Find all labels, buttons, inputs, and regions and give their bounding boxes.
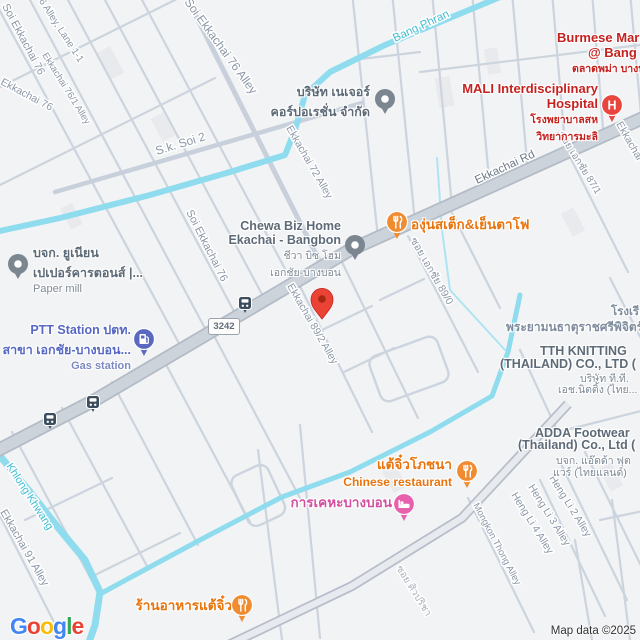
- poi-label-bangbon-housing[interactable]: การเคหะบางบอน: [291, 491, 392, 513]
- gray-poi-pin-nature-corp[interactable]: [374, 88, 396, 121]
- poi-label-ptt-station[interactable]: PTT Station ปตท. สาขา เอกชัย-บางบอน... G…: [3, 320, 131, 372]
- google-logo[interactable]: Google: [10, 613, 83, 640]
- bus-stop-icon-3[interactable]: [43, 412, 57, 436]
- destination-marker-pin[interactable]: [308, 283, 336, 326]
- gray-poi-pin-chewa[interactable]: [344, 234, 366, 267]
- poi-label-chewa-biz-home[interactable]: Chewa Biz Home Ekachai - Bangbon ชีวา บิ…: [228, 219, 341, 281]
- poi-label-adda-line2: (Thailand) Co., Ltd (: [518, 438, 635, 452]
- restaurant-icon-teochew[interactable]: [455, 460, 479, 497]
- poi-label-tth-line4: เอช.นิตติ้ง (ไทย...: [558, 381, 637, 398]
- restaurant-icon-teochew-2[interactable]: [230, 594, 254, 631]
- map-viewport[interactable]: Soi Ekkachai 76 Ekkachai 76 Alley, Lane …: [0, 0, 640, 640]
- hotel-icon[interactable]: [392, 493, 416, 530]
- gray-poi-pin-paper-mill[interactable]: [7, 253, 29, 286]
- poi-label-school-line2: พระยามนธาตุราชศรีพิจิตร์: [506, 318, 640, 337]
- svg-text:H: H: [607, 99, 616, 113]
- route-shield-3242: 3242: [208, 318, 240, 335]
- gas-station-icon[interactable]: [132, 328, 156, 365]
- poi-label-adda-line4: แวร์ (ไทยแลนด์): [553, 464, 627, 481]
- poi-label-nature-corp[interactable]: บริษัท เนเจอร์ คอร์ปอเรชั่น จำกัด: [270, 82, 370, 122]
- map-attribution: Map data ©2025: [551, 625, 636, 637]
- poi-label-mali-hospital[interactable]: MALI Interdisciplinary Hospital โรงพยาบา…: [462, 81, 598, 145]
- poi-label-burmese-market[interactable]: Burmese Market @ Bang Bon ตลาดพม่า บางบอ…: [557, 30, 640, 77]
- poi-label-teochew-restaurant[interactable]: แต้จิ๋วโภชนา Chinese restaurant: [343, 453, 452, 489]
- bus-stop-icon-2[interactable]: [86, 395, 100, 419]
- hospital-icon[interactable]: H: [600, 94, 624, 131]
- poi-label-teochew-restaurant-2[interactable]: ร้านอาหารแต้จิ๋ว: [136, 594, 232, 616]
- poi-label-paper-mill[interactable]: บจก. ยูเนียน เปเปอร์คารตอนส์ |... Paper …: [33, 243, 143, 295]
- poi-label-grape-steak[interactable]: องุ่นสเต็ก&เย็นตาโฟ: [411, 213, 529, 235]
- poi-label-tth-line2: (THAILAND) CO., LTD (: [500, 357, 636, 371]
- bus-stop-icon-1[interactable]: [238, 296, 252, 320]
- poi-label-tth-line1[interactable]: TTH KNITTING: [540, 344, 627, 358]
- restaurant-icon-grape-steak[interactable]: [385, 211, 409, 248]
